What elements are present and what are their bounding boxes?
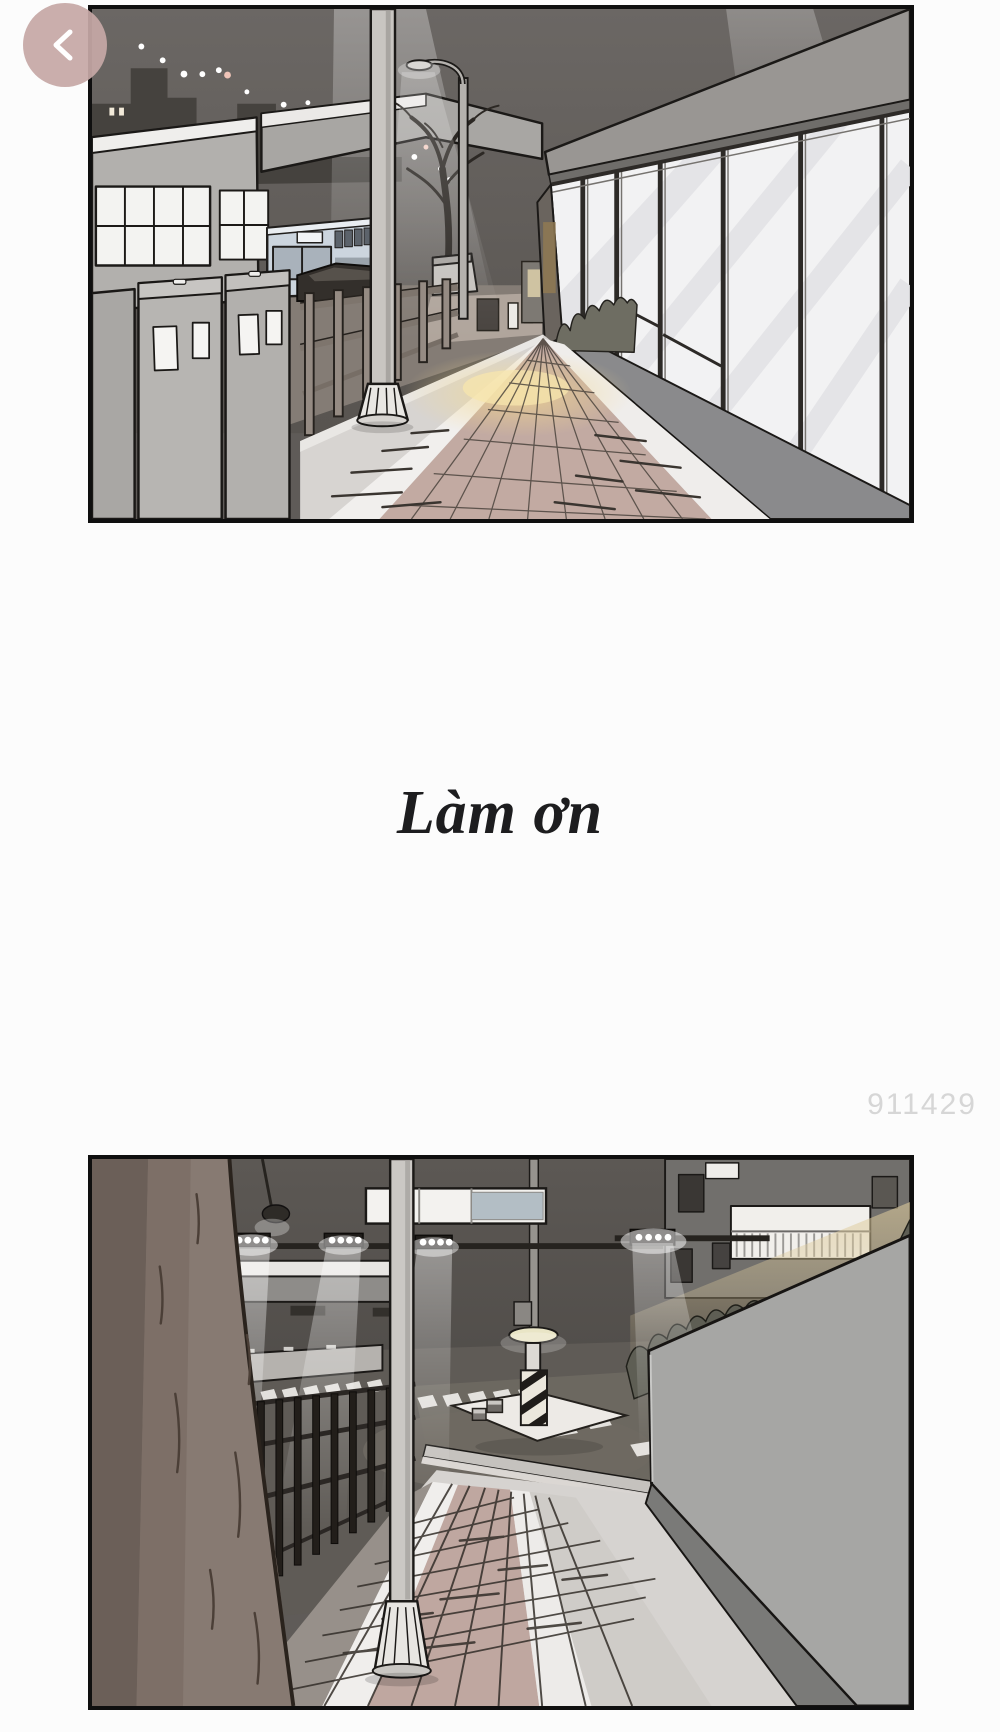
- chevron-left-icon: [44, 24, 86, 66]
- comic-caption: Làm ơn: [0, 778, 1000, 849]
- utility-cabinets: [92, 270, 289, 519]
- comic-panel-2[interactable]: [88, 1155, 914, 1710]
- webtoon-reader-page: Làm ơn 911429: [0, 0, 1000, 1732]
- watermark: 911429: [867, 1088, 977, 1122]
- comic-panel-1[interactable]: [88, 5, 914, 523]
- back-button[interactable]: [23, 3, 107, 87]
